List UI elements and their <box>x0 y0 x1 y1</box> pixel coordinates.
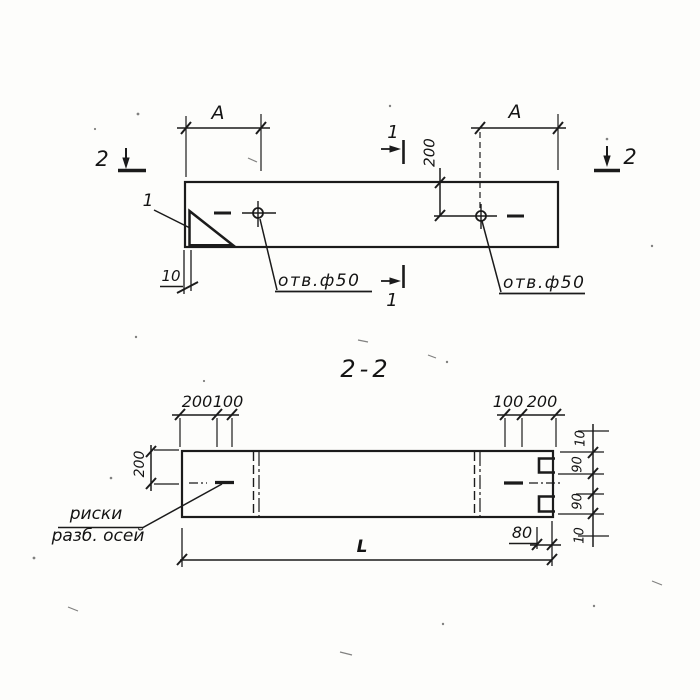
dim-length-label: L <box>347 539 377 556</box>
hole-left <box>214 201 276 227</box>
section-trace-left <box>254 452 260 516</box>
beam-outline-section <box>182 451 553 517</box>
dim-top-right <box>497 409 565 447</box>
dim-height-200-label: 200 <box>133 447 147 481</box>
hole-right-callout-label: отв.ф50 <box>503 275 587 292</box>
hole-right <box>434 204 524 229</box>
section-title: 2-2 <box>336 357 396 381</box>
section2-left-label: 2 <box>87 149 117 170</box>
section2-right-label: 2 <box>615 147 645 168</box>
section-trace-right <box>475 452 481 516</box>
axis-note-line2: разб. осей <box>48 528 148 545</box>
hole-left-callout-label: отв.ф50 <box>278 273 372 290</box>
dim-200-plan-label: 200 <box>423 135 438 171</box>
dim-height-200 <box>146 445 179 491</box>
dim-top-left-100-label: 100 <box>211 394 245 410</box>
dim-a-right <box>471 114 566 212</box>
section-mark-2-left <box>118 148 146 171</box>
corner-gusset <box>190 211 234 245</box>
section1-bottom-label: 1 <box>377 292 407 310</box>
dim-top-right-100-label: 100 <box>491 394 525 410</box>
section1-top-label: 1 <box>378 124 408 142</box>
axis-centerlines <box>189 483 561 484</box>
dim-top-left-200-label: 200 <box>180 394 214 410</box>
dim-a-left-label: A <box>203 104 233 123</box>
dim-top-right-200-label: 200 <box>525 394 559 410</box>
drawing-linework <box>0 0 700 700</box>
dim-right-90-top-label: 90 <box>572 448 585 482</box>
engineering-drawing: A A 200 2 2 1 1 1 отв.ф50 отв.ф50 10 2-2… <box>0 0 700 700</box>
dim-80-label: 80 <box>505 525 539 541</box>
section-mark-1-top <box>381 140 404 164</box>
section-mark-1-bottom <box>381 265 404 288</box>
top-view-linework <box>118 114 620 294</box>
beam-outline-plan <box>185 182 558 247</box>
detail-mark-label: 1 <box>133 193 163 210</box>
dim-right-10-bottom-label: 10 <box>574 519 587 553</box>
dim-a-right-label: A <box>500 103 530 122</box>
dim-right-90-bottom-label: 90 <box>572 485 585 519</box>
dim-10-plan-label: 10 <box>156 269 186 284</box>
axis-note-line1: риски <box>61 506 131 523</box>
dim-200-plan <box>435 168 445 221</box>
dim-top-left <box>172 409 239 447</box>
